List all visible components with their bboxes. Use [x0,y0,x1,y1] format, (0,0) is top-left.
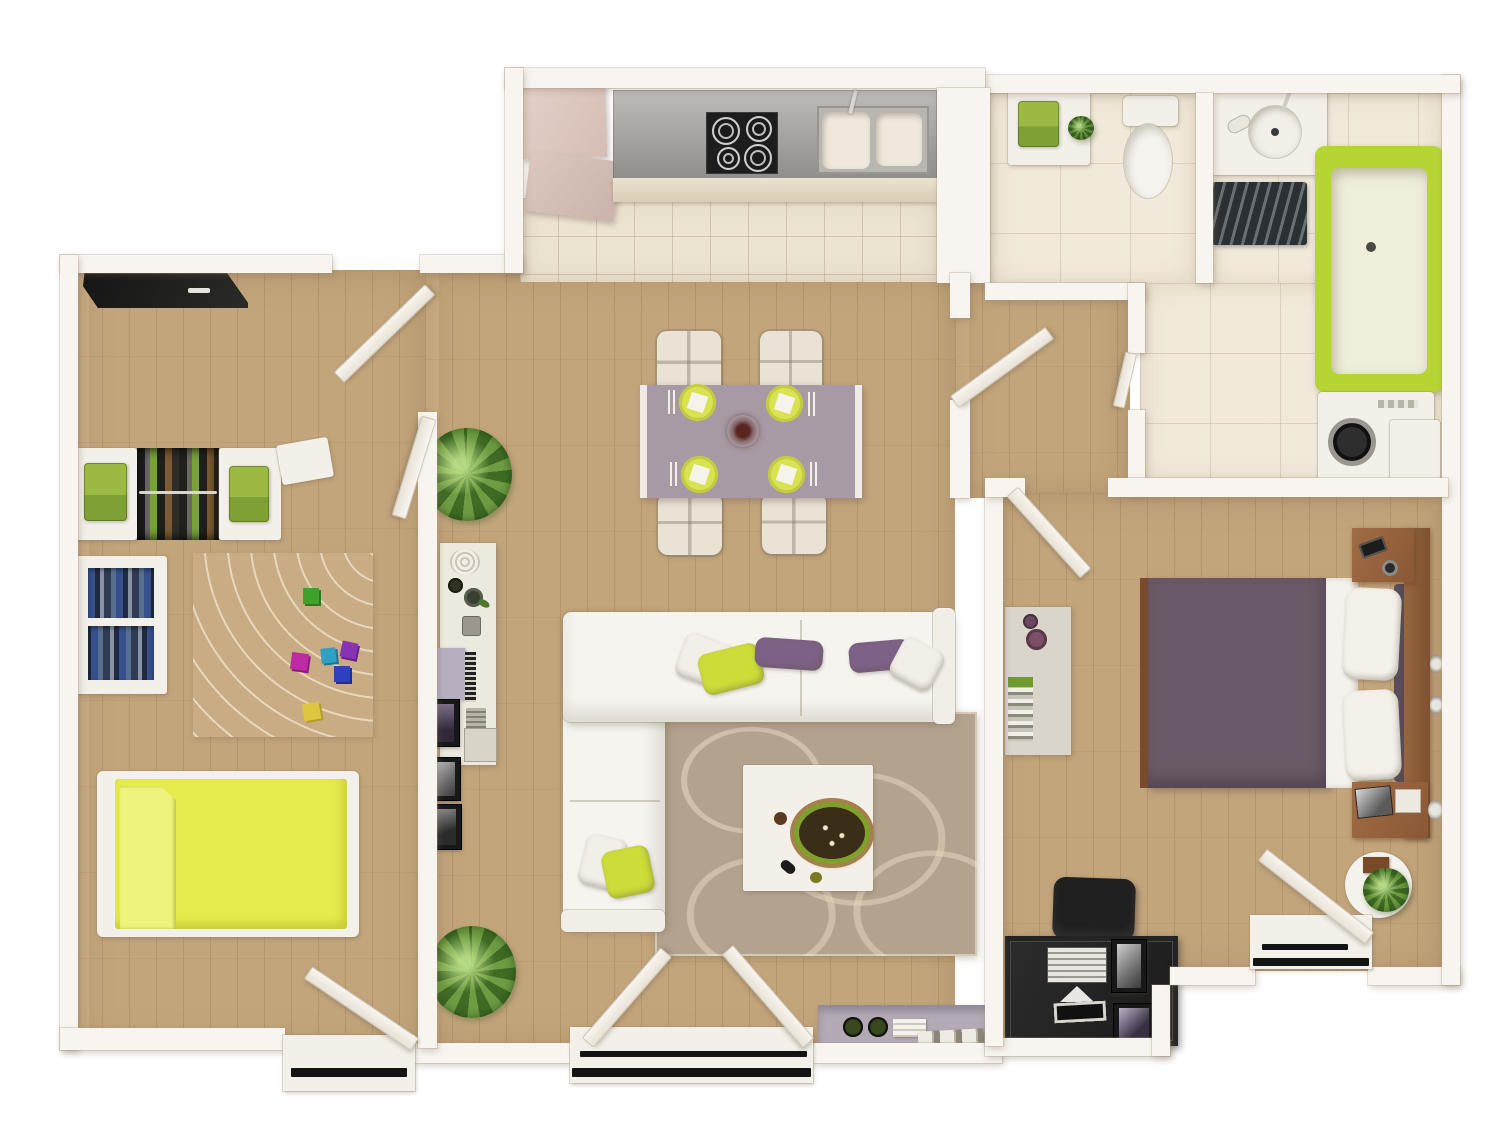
wall-kitchen-top [505,68,985,88]
washer-door [1328,418,1376,466]
dining-chair-bottom-left [658,493,722,555]
wall-wc-bottom [985,283,1145,300]
master-threshold-track-2 [1253,958,1369,966]
sofa-armrest-bottom [561,910,665,932]
master-pillow-bottom [1342,689,1403,782]
towels-right [229,466,269,522]
wardrobe-hanging-clothes [137,448,219,540]
wc-plant [1068,116,1094,140]
desk-magazine-flat-cover [1119,1008,1149,1038]
table-centerpiece [727,415,759,447]
toy-cube-blue [334,666,350,682]
wall-kitchen-right [937,88,990,283]
keyboard [1048,948,1106,982]
tablet [1054,1001,1107,1024]
wall-right [1442,75,1460,985]
wc-towels [1018,101,1059,147]
toilet-tank [1123,96,1178,126]
wall-hall-stub-top [950,273,970,318]
snack-bowl [794,802,870,864]
burner-1 [712,117,740,145]
living-threshold-track-1 [580,1051,807,1057]
toy-cube-magenta [290,652,309,671]
potted-plant-bottom [428,926,516,1018]
side-table-plant [1363,868,1409,912]
sink-basin-right [876,113,922,166]
sofa-seam-horizontal [570,800,660,802]
wardrobe-rail [139,491,217,494]
wall-living-bottom-right [812,1043,1002,1063]
desk-chair [1052,877,1136,942]
bed-duvet [1148,578,1330,788]
pillow-lime-bottom [600,844,657,901]
wall-master-top-right [1108,478,1448,497]
sideboard-plant-2 [868,1017,888,1037]
sink-basin-left [822,112,870,169]
wall-bath-left-upper [1128,283,1145,353]
living-threshold-track-2 [572,1068,811,1077]
burner-2 [746,116,772,142]
wall-master-bottom-left [1170,967,1255,985]
burner-4 [744,144,772,172]
table-item-olive [810,872,822,883]
dining-chair-bottom-right [762,493,826,554]
kids-bed-blanket-fold [120,786,176,929]
floor-plan-canvas [0,0,1500,1146]
books-row-bottom [88,626,154,680]
master-pillow-top [1342,587,1403,682]
desk-magazine-flat [1114,1004,1154,1042]
pillow-purple-left [754,637,824,672]
wall-kids-bottom [60,1028,285,1050]
nightstand-magazine [1356,786,1393,817]
console-vase-purple-large [1026,629,1047,650]
master-threshold-track-1 [1262,944,1348,950]
cutlery-1 [668,390,676,414]
nightstand-box [1396,790,1420,812]
wall-left [60,255,78,1050]
sideboard-plant-1 [843,1017,863,1037]
kids-threshold-track [291,1068,407,1077]
bath-side-cabinet [1390,420,1440,480]
desk-magazine-stand [1112,940,1146,992]
alarm-clock [1382,560,1398,576]
basin-drain [1271,128,1279,136]
wall-hall-stub-bottom [950,400,970,498]
wall-divider-kids-living [418,412,437,1048]
toy-cube-purple [340,641,359,660]
wall-top-left-a [60,255,332,273]
burner-3 [717,147,740,170]
console-notebook [465,652,476,702]
toilet-bowl [1124,124,1172,198]
toy-cube-green [303,588,319,604]
cutlery-3 [670,462,678,486]
tub-drain [1366,242,1376,252]
toy-cube-yellow [302,702,322,722]
console-books [1008,677,1033,741]
wall-kitchen-left [505,68,523,273]
lower-cabinet [524,151,621,222]
table-item-dark [774,812,787,825]
wall-sconce-3 [1428,800,1443,820]
towels-left [84,463,127,521]
wall-master-left [985,493,1003,1046]
bathtub-basin [1331,168,1427,374]
zebra-bath-mat [1212,182,1307,245]
panel-handle [188,288,210,293]
console-remote [462,616,481,636]
wall-nook-right [1152,985,1170,1056]
counter-front-edge [613,178,937,202]
kids-balcony-threshold [283,1035,415,1091]
cutlery-2 [808,392,816,416]
wall-nook-bottom [985,1038,1170,1056]
console-vase-purple-small [1023,614,1038,629]
console-cup-dark [448,578,463,593]
console-vase-large [450,549,480,575]
cutlery-4 [810,462,818,486]
wall-top-right [985,75,1460,93]
toy-cube-teal [320,647,336,663]
desk-magazine-cover [1117,944,1141,988]
books-row-top [88,568,154,618]
console-drawer-box [464,728,497,762]
wall-wc-bath-divider [1196,93,1213,283]
washer-panel [1378,400,1418,408]
